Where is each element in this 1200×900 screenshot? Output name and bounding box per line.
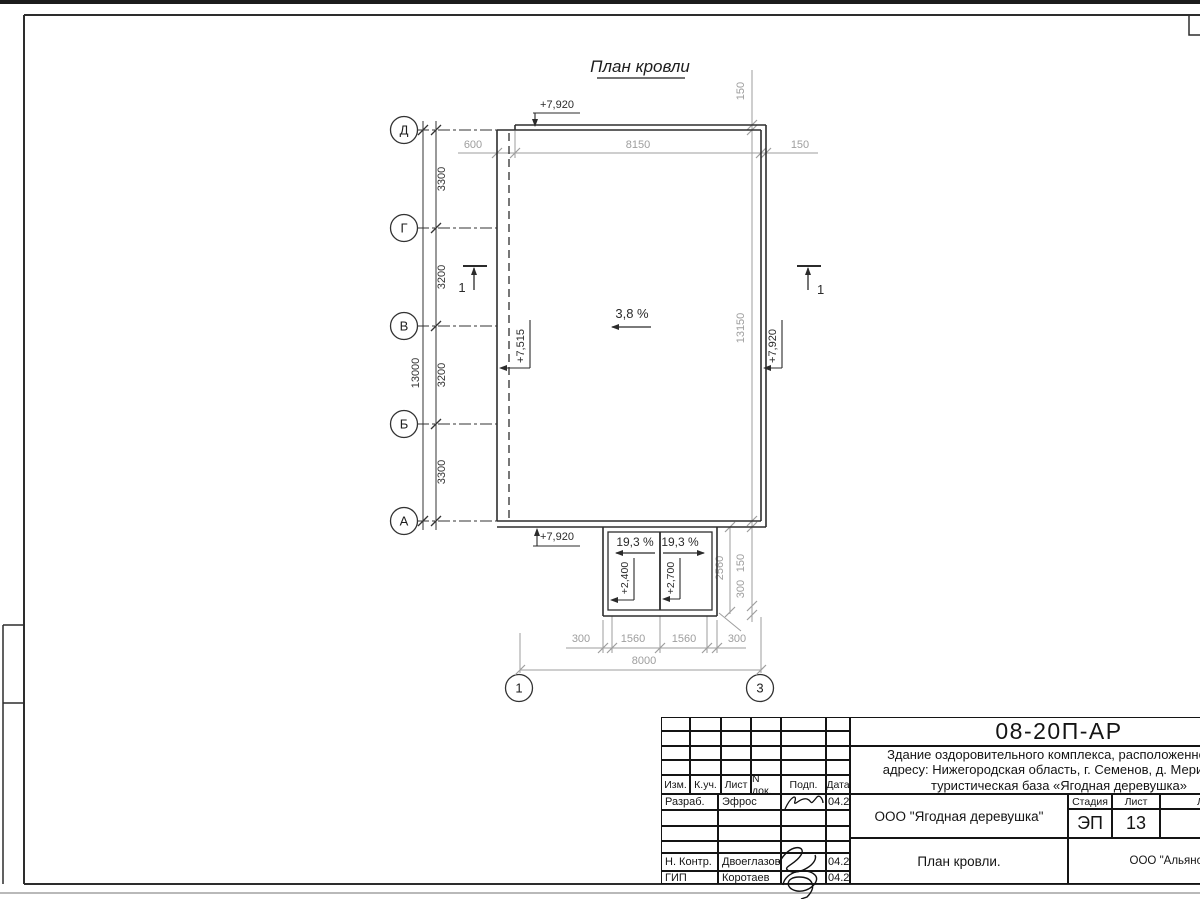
stage-value: ЭП: [1068, 809, 1112, 838]
description-line-3: туристическая база «Ягодная деревушка»: [931, 778, 1187, 794]
dim-150-vert-top: 150: [735, 82, 747, 100]
role-gip: ГИП: [661, 871, 718, 884]
revision-grid: [661, 717, 850, 775]
dim-300-right-b: 300: [728, 633, 746, 645]
elevation-roof-top: +7,920: [540, 99, 574, 111]
drawing-name: План кровли.: [850, 838, 1068, 884]
sheets-label: Листов: [1160, 794, 1200, 809]
sheets-value-empty: [1160, 809, 1200, 838]
empty-role-cell: [661, 810, 718, 826]
empty-sig-cell: [781, 810, 826, 826]
empty-name-cell: [718, 841, 781, 853]
company-name: ООО "Ягодная деревушка": [850, 794, 1068, 838]
screen-top-strip: [0, 0, 1200, 4]
dim-2560: 2560: [714, 556, 726, 580]
dim-1560-b: 1560: [672, 633, 696, 645]
empty-sig-cell: [781, 841, 826, 853]
slope-porch-left: 19,3 %: [616, 535, 654, 549]
drawing-sheet: План кровли Д Г В Б А 1 3 3300 3200 3200…: [0, 0, 1200, 900]
axis-label-b: Б: [400, 417, 409, 432]
dim-150-top-right: 150: [791, 139, 809, 151]
bottom-dimension-labels: 300 1560 1560 300 8000: [572, 633, 746, 667]
dim-13000: 13000: [410, 358, 422, 389]
project-description: Здание оздоровительного комплекса, распо…: [850, 746, 1200, 794]
elevation-roof-bottom: +7,920: [540, 531, 574, 543]
empty-role-cell: [661, 841, 718, 853]
name-gip: Коротаев: [718, 871, 781, 884]
elevation-roof-right: +7,920: [767, 329, 779, 363]
axis-label-g: Г: [400, 221, 407, 236]
row-axis-labels: Д Г В Б А: [400, 123, 409, 529]
description-line-1: Здание оздоровительного комплекса, распо…: [887, 747, 1200, 763]
drawing-title: План кровли: [590, 57, 690, 78]
col-axis-labels: 1 3: [515, 681, 763, 696]
dim-8150: 8150: [626, 139, 650, 151]
role-nkontr: Н. Контр.: [661, 853, 718, 871]
slope-marks: [612, 327, 704, 553]
right-dimension-chain: [719, 70, 757, 631]
dim-3200-b: 3200: [436, 363, 448, 387]
sheet-label: Лист: [1112, 794, 1160, 809]
rev-header-data: Дата: [826, 775, 850, 794]
empty-date-cell: [826, 826, 850, 841]
elevation-porch-left: +2,400: [619, 562, 631, 595]
axis-label-a: А: [400, 514, 409, 529]
rev-header-list: Лист: [721, 775, 751, 794]
signature-cell-gip: [781, 871, 826, 884]
dim-600: 600: [464, 139, 482, 151]
stage-label: Стадия: [1068, 794, 1112, 809]
elevation-porch-right: +2,700: [665, 562, 677, 595]
empty-date-cell: [826, 810, 850, 826]
axis-label-d: Д: [400, 123, 409, 138]
frame-corner-box: [1189, 15, 1200, 35]
dim-3300-bottom: 3300: [436, 460, 448, 484]
empty-name-cell: [718, 826, 781, 841]
dim-150-right-bottom: 150: [735, 554, 747, 572]
rev-header-ndok: N док.: [751, 775, 781, 794]
elevation-labels: +7,920 +7,920 +7,515 +7,920 +2,400 +2,70…: [515, 99, 779, 594]
dim-1560-a: 1560: [621, 633, 645, 645]
roof-outline: [497, 125, 766, 527]
empty-date-cell: [826, 841, 850, 853]
sheet-value: 13: [1112, 809, 1160, 838]
date-razrab: 04.20: [826, 794, 850, 810]
rev-header-izm: Изм.: [661, 775, 690, 794]
elevation-roof-inner: +7,515: [515, 329, 527, 363]
empty-name-cell: [718, 810, 781, 826]
dim-3200-a: 3200: [436, 265, 448, 289]
signature-cell-razrab: [781, 794, 826, 810]
role-razrab: Разраб.: [661, 794, 718, 810]
name-razrab: Эфрос: [718, 794, 781, 810]
axis-label-1: 1: [515, 681, 522, 696]
name-nkontr: Двоеглазов: [718, 853, 781, 871]
slope-labels: 3,8 % 19,3 % 19,3 %: [615, 306, 699, 549]
top-dimension-labels: 600 8150 150: [464, 139, 809, 151]
dim-13150: 13150: [735, 313, 747, 344]
rev-header-kuch: К.уч.: [690, 775, 721, 794]
section-label-left: 1: [458, 280, 465, 295]
org-name: ООО "Альянс": [1068, 838, 1200, 884]
dim-300-right: 300: [735, 580, 747, 598]
description-line-2: адресу: Нижегородская область, г. Семено…: [883, 762, 1200, 778]
date-gip: 04.20: [826, 871, 850, 884]
axis-label-v: В: [400, 319, 409, 334]
date-nkontr: 04.20: [826, 853, 850, 871]
title-block: Изм. К.уч. Лист N док. Подп. Дата Разраб…: [661, 717, 1200, 884]
plan-title-text: План кровли: [590, 57, 690, 76]
slope-main: 3,8 %: [615, 306, 649, 321]
section-mark-left: [463, 266, 487, 290]
dim-8000: 8000: [632, 655, 656, 667]
doc-number: 08-20П-АР: [850, 717, 1200, 746]
empty-sig-cell: [781, 826, 826, 841]
section-label-right: 1: [817, 282, 824, 297]
rev-header-podp: Подп.: [781, 775, 826, 794]
signature-cell-nkontr: [781, 853, 826, 871]
dim-300-left: 300: [572, 633, 590, 645]
empty-role-cell: [661, 826, 718, 841]
dim-3300-top: 3300: [436, 167, 448, 191]
frame-side-stamp: [3, 625, 24, 884]
slope-porch-right: 19,3 %: [661, 535, 699, 549]
axis-label-3: 3: [756, 681, 763, 696]
col-axes: [506, 675, 774, 702]
